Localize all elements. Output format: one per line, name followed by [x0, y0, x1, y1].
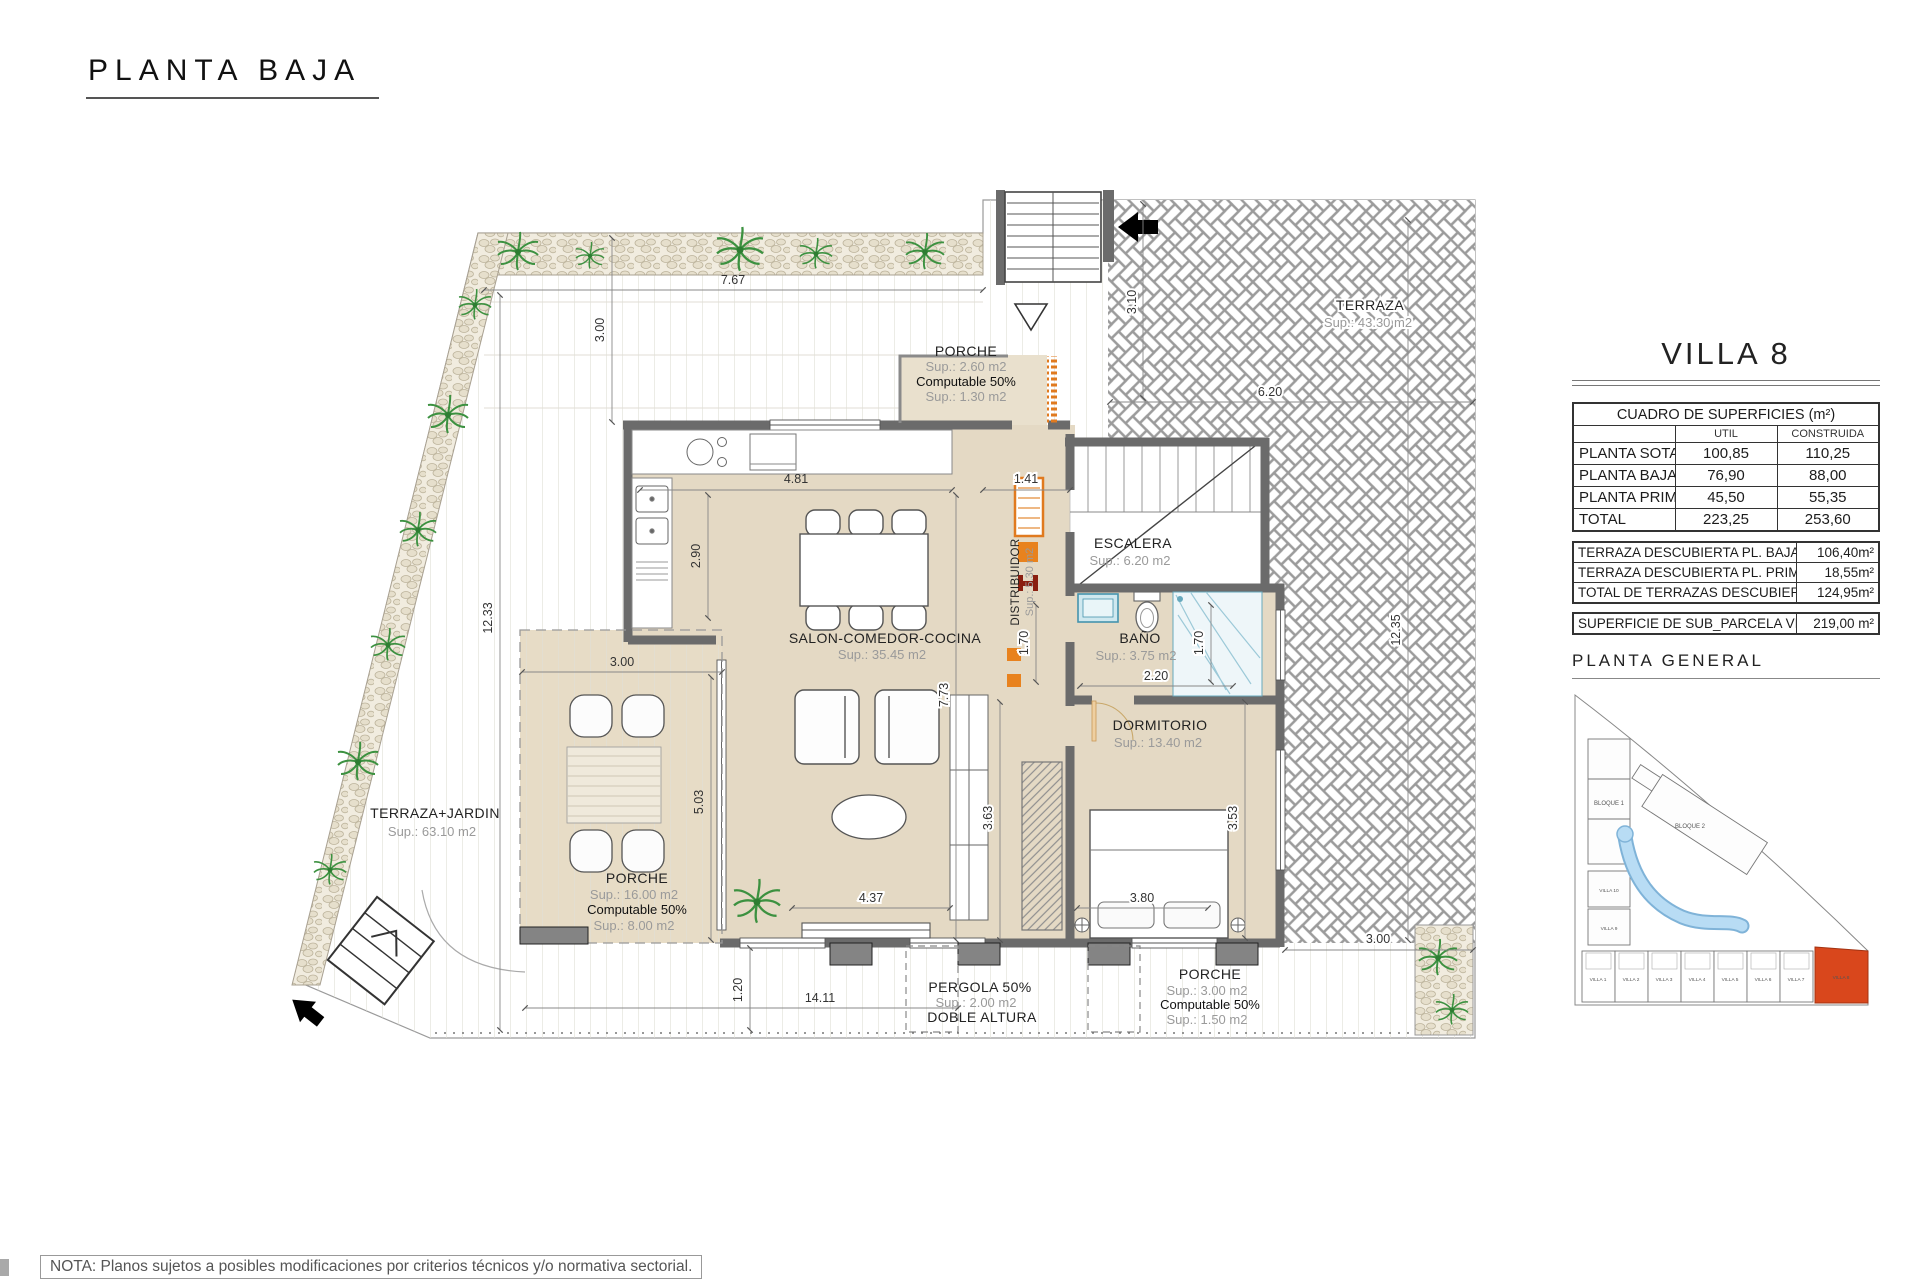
label-dormitorio-name: DORMITORIO — [1113, 717, 1208, 733]
label-salon-sup: Sup.: 35.45 m2 — [838, 647, 926, 662]
label-villa9: VILLA 9 — [1601, 926, 1618, 932]
dim-hall-width: 1.41 — [1014, 472, 1038, 486]
dim-porch-width: 3.00 — [610, 655, 634, 669]
dim-porch-height: 5.03 — [692, 790, 706, 814]
dim-dorm-height: 3.53 — [1226, 806, 1240, 830]
label-villa6: VILLA 6 — [1755, 977, 1772, 983]
table-row: TOTAL 223,25 253,60 — [1573, 509, 1879, 532]
parcel-table: SUPERFICIE DE SUB_PARCELA VILLA 8 219,00… — [1572, 612, 1880, 635]
label-villa3: VILLA 3 — [1656, 977, 1673, 983]
floor-plan: 7.67 6.20 4.81 1.41 3.00 2.20 4.37 3.80 … — [270, 190, 1500, 1070]
dim-plot-height: 1.20 — [731, 978, 745, 1002]
info-panel: VILLA 8 CUADRO DE SUPERFICIES (m²) UTIL … — [1572, 336, 1880, 1011]
edge-mark — [0, 1259, 9, 1276]
label-villa7: VILLA 7 — [1788, 977, 1805, 983]
dining-table — [800, 510, 928, 630]
label-bloque1: BLOQUE 1 — [1594, 801, 1625, 807]
label-porche-right-comp: Computable 50% — [1160, 997, 1260, 1012]
label-pergola-sup: Sup.: 2.00 m2 — [936, 995, 1017, 1010]
dim-right-height: 12.35 — [1389, 614, 1403, 645]
dim-top-width: 7.67 — [721, 273, 745, 287]
surfaces-table-title: CUADRO DE SUPERFICIES (m²) — [1573, 403, 1879, 426]
label-escalera-sup: Sup.: 6.20 m2 — [1090, 553, 1171, 568]
table-row: TOTAL DE TERRAZAS DESCUBIERTAS 124,95m² — [1573, 583, 1879, 604]
col-util: UTIL — [1675, 426, 1777, 443]
label-bano-name: BAÑO — [1119, 630, 1160, 646]
dim-salon-height-2: 3.63 — [981, 806, 995, 830]
entry-arrow-bottom-icon — [284, 989, 328, 1032]
dim-bath-width: 2.20 — [1144, 669, 1168, 683]
dim-kitchen-height: 2.90 — [689, 544, 703, 568]
label-villa1: VILLA 1 — [1590, 977, 1607, 983]
label-pergola-name: PERGOLA 50% — [928, 979, 1031, 995]
label-villa8: VILLA 8 — [1833, 975, 1850, 981]
label-porche-right-name: PORCHE — [1179, 966, 1241, 982]
label-porche-right-comp-sup: Sup.: 1.50 m2 — [1167, 1012, 1248, 1027]
villa-title: VILLA 8 — [1572, 336, 1880, 372]
label-porche-right-sup: Sup.: 3.00 m2 — [1167, 983, 1248, 998]
dim-walk-width: 3.00 — [1366, 932, 1390, 946]
terraces-table: TERRAZA DESCUBIERTA PL. BAJA 106,40m² TE… — [1572, 541, 1880, 604]
dim-stairs-height: 3.10 — [1125, 290, 1139, 314]
toilet-tank — [1134, 592, 1160, 601]
label-porche-left-name: PORCHE — [606, 870, 668, 886]
sofa-right — [875, 690, 939, 764]
wardrobe — [1022, 762, 1062, 930]
label-villa4: VILLA 4 — [1689, 977, 1706, 983]
label-escalera-name: ESCALERA — [1094, 535, 1172, 551]
label-terraza-sup: Sup.: 43.30 m2 — [1324, 315, 1412, 330]
entry-stairs-top — [996, 190, 1114, 285]
label-dormitorio-sup: Sup.: 13.40 m2 — [1114, 735, 1202, 750]
label-porche-left-comp-sup: Sup.: 8.00 m2 — [594, 918, 675, 933]
label-salon-name: SALON-COMEDOR-COCINA — [789, 630, 982, 646]
dim-bed-width: 3.80 — [1130, 891, 1154, 905]
label-porche-left-comp: Computable 50% — [587, 902, 687, 917]
porch-top-door-frame — [1047, 356, 1057, 423]
label-villa10: VILLA 10 — [1599, 888, 1619, 894]
table-row: TERRAZA DESCUBIERTA PL. PRIMERA 18,55m² — [1573, 563, 1879, 583]
kitchen-sink — [687, 439, 713, 465]
surfaces-table: CUADRO DE SUPERFICIES (m²) UTIL CONSTRUI… — [1572, 402, 1880, 532]
label-terraza-jardin-sup: Sup.: 63.10 m2 — [388, 824, 476, 839]
sofa-left — [795, 690, 859, 764]
dim-plot-width: 14.11 — [805, 991, 835, 1005]
dim-salon-width: 4.37 — [859, 891, 883, 905]
label-distribuidor-sup: Sup.: 5.30 m2 — [1024, 548, 1036, 617]
dim-terraza-width: 6.20 — [1258, 385, 1282, 399]
dim-kitchen-width: 4.81 — [784, 472, 808, 486]
label-terraza-jardin-name: TERRAZA+JARDIN — [370, 805, 500, 821]
page-title: PLANTA BAJA — [86, 54, 379, 99]
planter — [1415, 925, 1473, 1035]
porch-pillar — [520, 927, 588, 944]
label-terraza-name: TERRAZA — [1336, 297, 1404, 313]
site-villa-row — [1582, 951, 1813, 1002]
site-villa8-highlight — [1815, 947, 1868, 1003]
col-construida: CONSTRUIDA — [1777, 426, 1879, 443]
dim-top-height: 3.00 — [593, 318, 607, 342]
label-porche-top-comp-sup: Sup.: 1.30 m2 — [926, 389, 1007, 404]
label-porche-top-name: PORCHE — [935, 343, 997, 359]
table-row: PLANTA BAJA 76,90 88,00 — [1573, 465, 1879, 487]
site-plan: BLOQUE 1 BLOQUE 2 VILLA 10 VILLA 9 VILLA… — [1572, 689, 1872, 1011]
label-porche-top-comp: Computable 50% — [916, 374, 1016, 389]
label-porche-top-sup: Sup.: 2.60 m2 — [926, 359, 1007, 374]
label-villa5: VILLA 5 — [1722, 977, 1739, 983]
dim-salon-height: 7.73 — [937, 683, 951, 707]
table-row: TERRAZA DESCUBIERTA PL. BAJA 106,40m² — [1573, 542, 1879, 563]
title-rule — [1572, 380, 1880, 386]
note-box: NOTA: Planos sujetos a posibles modifica… — [40, 1255, 702, 1279]
porch-rug — [567, 747, 661, 823]
planta-general-title: PLANTA GENERAL — [1572, 651, 1880, 679]
dim-left-height: 12.33 — [481, 602, 495, 633]
tv-console — [802, 923, 930, 938]
label-pergola-extra: DOBLE ALTURA — [927, 1009, 1037, 1025]
table-row: PLANTA SOTANO 100,85 110,25 — [1573, 443, 1879, 465]
label-villa2: VILLA 2 — [1623, 977, 1640, 983]
dim-bath-height-1: 1.70 — [1017, 631, 1031, 655]
dim-bath-height-2: 1.70 — [1192, 631, 1206, 655]
table-row: PLANTA PRIMERA 45,50 55,35 — [1573, 487, 1879, 509]
coffee-table — [832, 795, 906, 839]
table-row: SUPERFICIE DE SUB_PARCELA VILLA 8 219,00… — [1573, 613, 1879, 634]
label-distribuidor-name: DISTRIBUIDOR — [1010, 538, 1022, 625]
label-bano-sup: Sup.: 3.75 m2 — [1096, 648, 1177, 663]
label-bloque2: BLOQUE 2 — [1675, 824, 1706, 830]
label-porche-left-sup: Sup.: 16.00 m2 — [590, 887, 678, 902]
